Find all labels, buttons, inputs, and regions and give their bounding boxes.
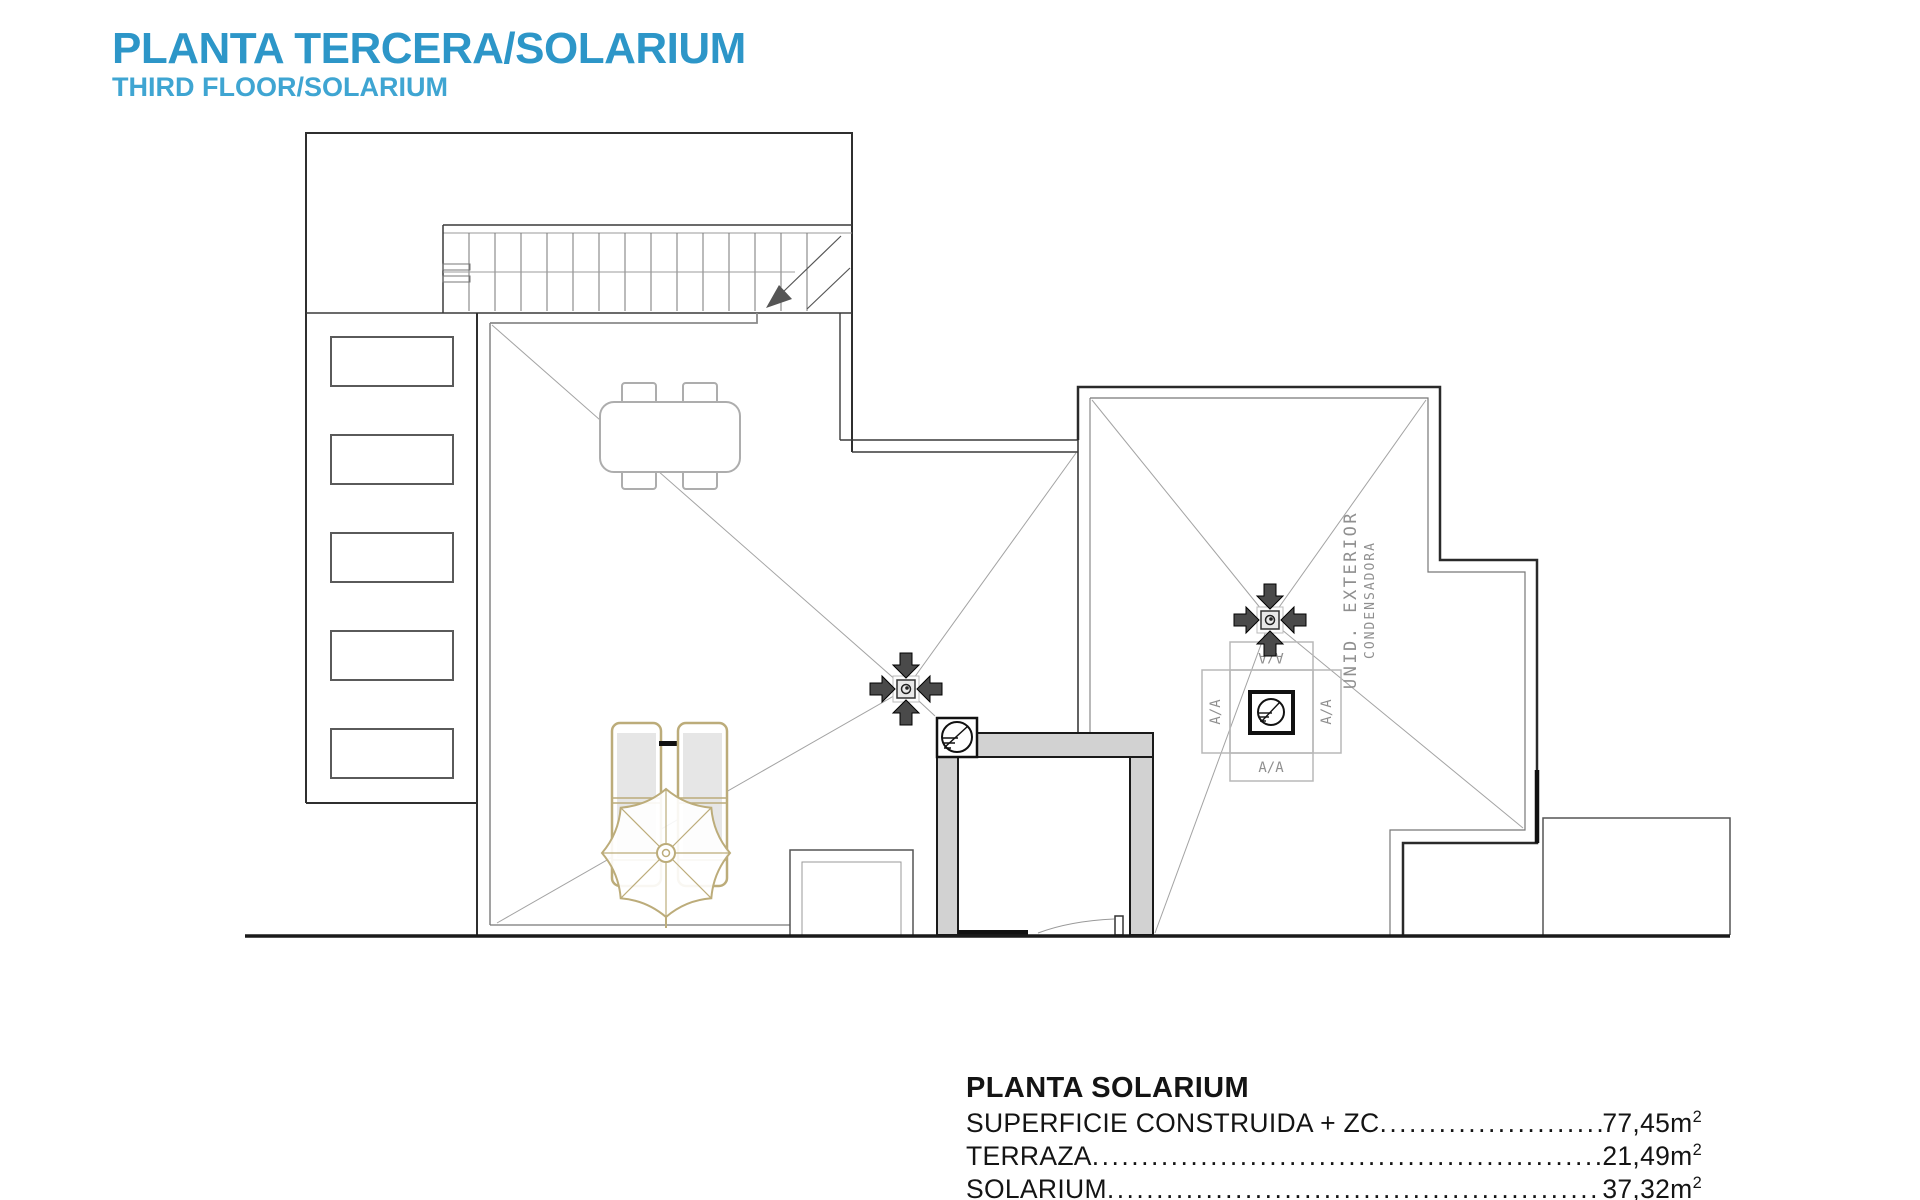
floorplan-drawing: A/A A/A A/A A/A UNID. EXTERIOR CONDENSAD… <box>0 0 1920 1200</box>
ac-fan-icon <box>1250 692 1293 733</box>
area-row-value: 21,49m2 <box>1602 1140 1702 1173</box>
area-row-label: SUPERFICIE CONSTRUIDA + ZC <box>966 1107 1379 1140</box>
ac-flap-label-bottom: A/A <box>1258 760 1284 776</box>
drain-symbol-left-terrace <box>870 653 942 725</box>
door-swing-arc <box>1038 919 1114 933</box>
left-step <box>790 850 913 935</box>
right-terrace-outline <box>1078 387 1730 935</box>
staircase <box>443 225 852 313</box>
dot-leader: ........................................… <box>1107 1173 1603 1200</box>
ac-flap-label-right: A/A <box>1319 699 1335 725</box>
vent-extractor-icon <box>937 718 977 757</box>
area-summary-title: PLANTA SOLARIUM <box>966 1072 1702 1104</box>
area-row-value: 37,32m2 <box>1602 1173 1702 1200</box>
stair-core <box>937 718 1153 937</box>
door-leaf <box>1115 916 1123 935</box>
ac-condenser-unit: A/A A/A A/A A/A UNID. EXTERIOR CONDENSAD… <box>1202 511 1378 781</box>
ac-flap-label-left: A/A <box>1208 699 1224 725</box>
area-row-label: SOLARIUM <box>966 1173 1107 1200</box>
table <box>600 402 740 472</box>
dot-leader: ........................................… <box>1092 1140 1603 1173</box>
condenser-label-line2: CONDENSADORA <box>1363 541 1378 659</box>
parasol-umbrella <box>602 789 730 928</box>
louver-panels <box>331 337 453 778</box>
right-step <box>1543 818 1730 935</box>
area-summary: PLANTA SOLARIUM SUPERFICIE CONSTRUIDA + … <box>966 1072 1702 1200</box>
area-row-superficie: SUPERFICIE CONSTRUIDA + ZC .............… <box>966 1107 1702 1140</box>
area-row-solarium: SOLARIUM ...............................… <box>966 1173 1702 1200</box>
area-row-label: TERRAZA <box>966 1140 1092 1173</box>
condenser-label-line1: UNID. EXTERIOR <box>1341 511 1361 689</box>
dining-set <box>600 383 740 489</box>
side-table <box>659 741 678 746</box>
area-row-terraza: TERRAZA ................................… <box>966 1140 1702 1173</box>
drain-symbol-right-terrace <box>1234 584 1306 656</box>
dot-leader: ........................................… <box>1379 1107 1602 1140</box>
area-row-value: 77,45m2 <box>1602 1107 1702 1140</box>
floorplan-page: PLANTA TERCERA/SOLARIUM THIRD FLOOR/SOLA… <box>0 0 1920 1200</box>
